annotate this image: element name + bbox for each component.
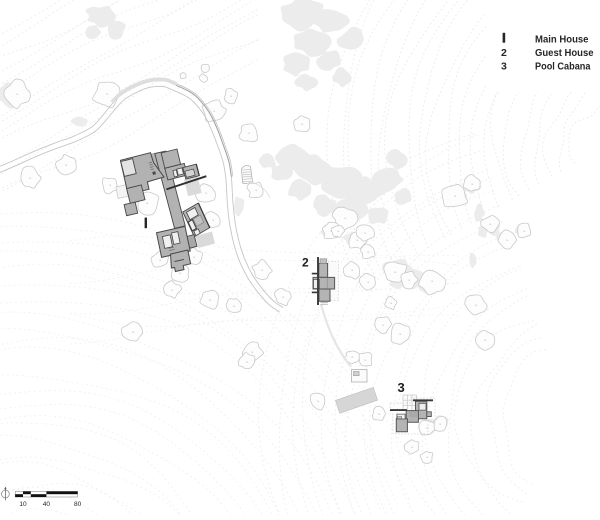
svg-text:80: 80 <box>74 501 82 508</box>
svg-text:Main House: Main House <box>535 34 589 46</box>
svg-text:3: 3 <box>398 380 405 395</box>
svg-text:Guest House: Guest House <box>535 47 594 59</box>
svg-text:2: 2 <box>501 47 507 59</box>
svg-text:40: 40 <box>43 501 51 508</box>
svg-text:10: 10 <box>19 501 27 508</box>
svg-text:2: 2 <box>302 256 309 270</box>
svg-text:Pool Cabana: Pool Cabana <box>535 61 591 73</box>
svg-text:3: 3 <box>501 61 507 73</box>
